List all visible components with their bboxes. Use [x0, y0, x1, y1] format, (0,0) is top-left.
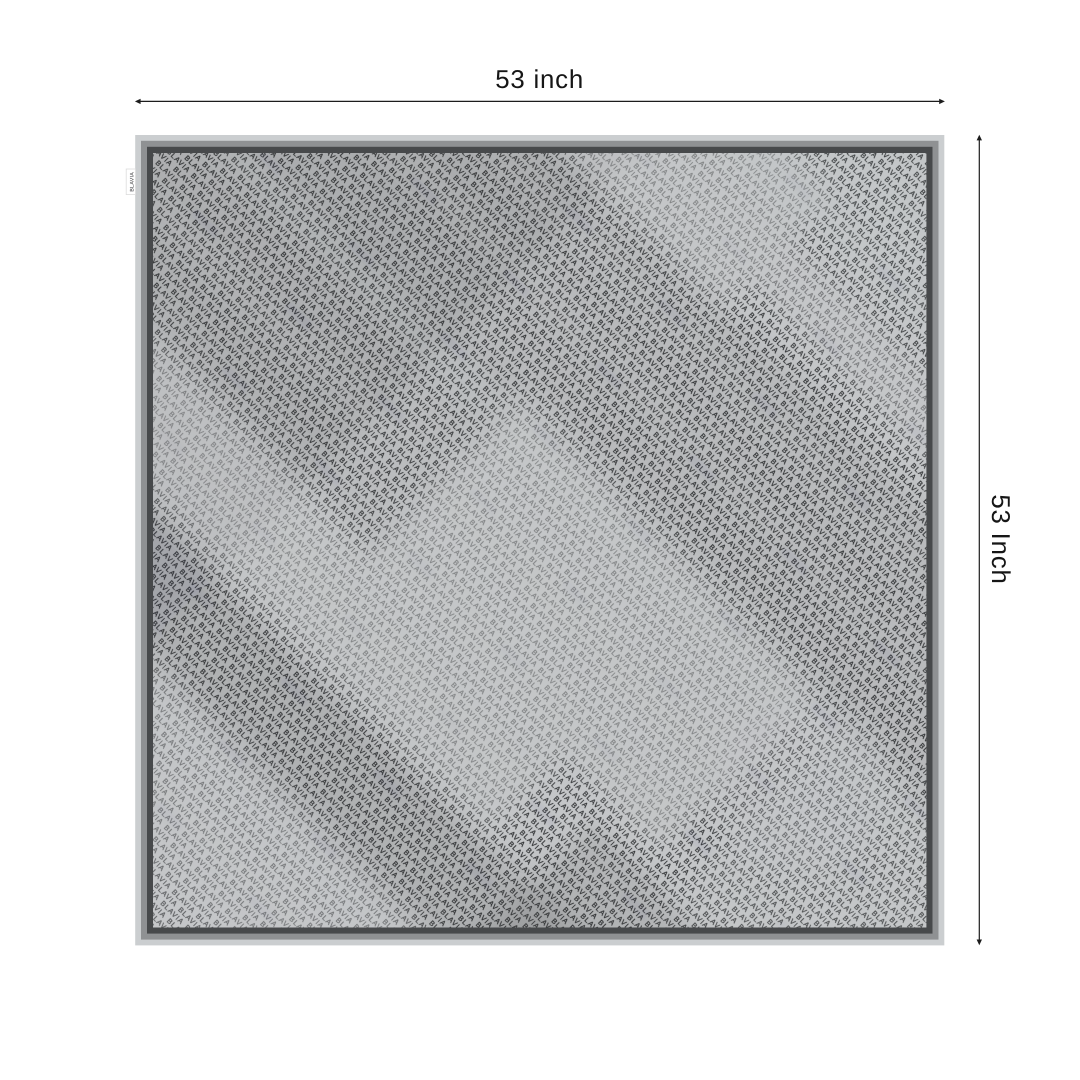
svg-text:53 inch: 53 inch [495, 66, 584, 94]
svg-text:53 Inch: 53 Inch [986, 494, 1014, 584]
svg-text:BLAVIA: BLAVIA [129, 172, 135, 192]
